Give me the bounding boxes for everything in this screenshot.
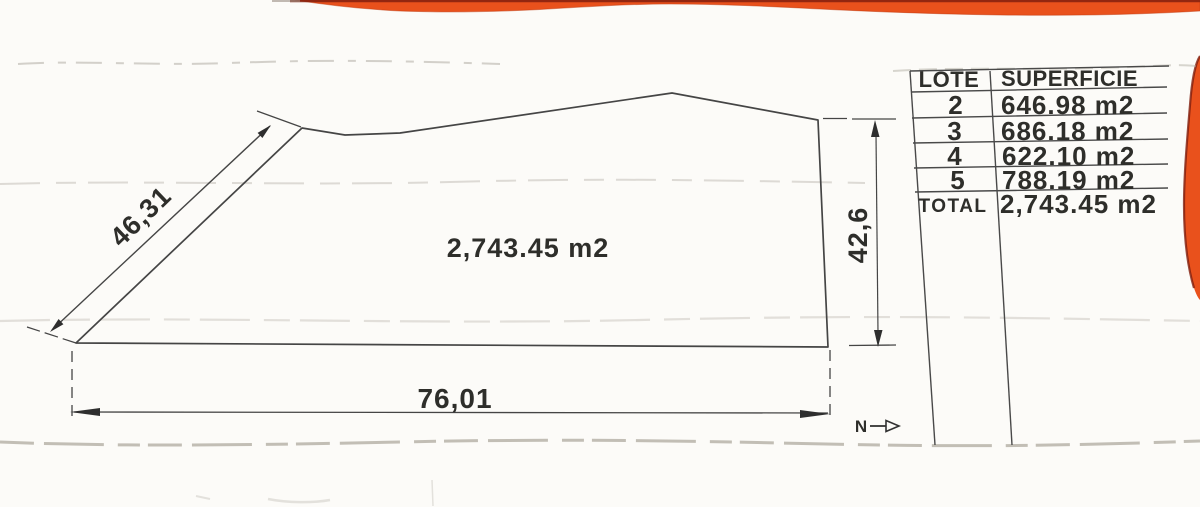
dimension-right-tick-bottom [849, 345, 896, 346]
scan-smudge [432, 480, 433, 506]
north-arrow-label: N [855, 417, 867, 436]
lot-table-header-lote: LOTE [919, 67, 980, 92]
dimension-right-label: 42,6 [843, 207, 873, 264]
lot-table-total-value: 2,743.45 m2 [1000, 189, 1157, 219]
survey-plan-canvas: 46,31 42,6 76,01 2,743.45 m2 N [0, 0, 1200, 507]
lot-number: 5 [950, 165, 965, 195]
scanned-survey-page: 46,31 42,6 76,01 2,743.45 m2 N [0, 0, 1200, 507]
lot-table-header-superficie: SUPERFICIE [1001, 66, 1138, 91]
dimension-bottom-label: 76,01 [417, 383, 492, 414]
lot-table-total-label: TOTAL [918, 196, 987, 217]
parcel-area-label: 2,743.45 m2 [447, 233, 610, 263]
